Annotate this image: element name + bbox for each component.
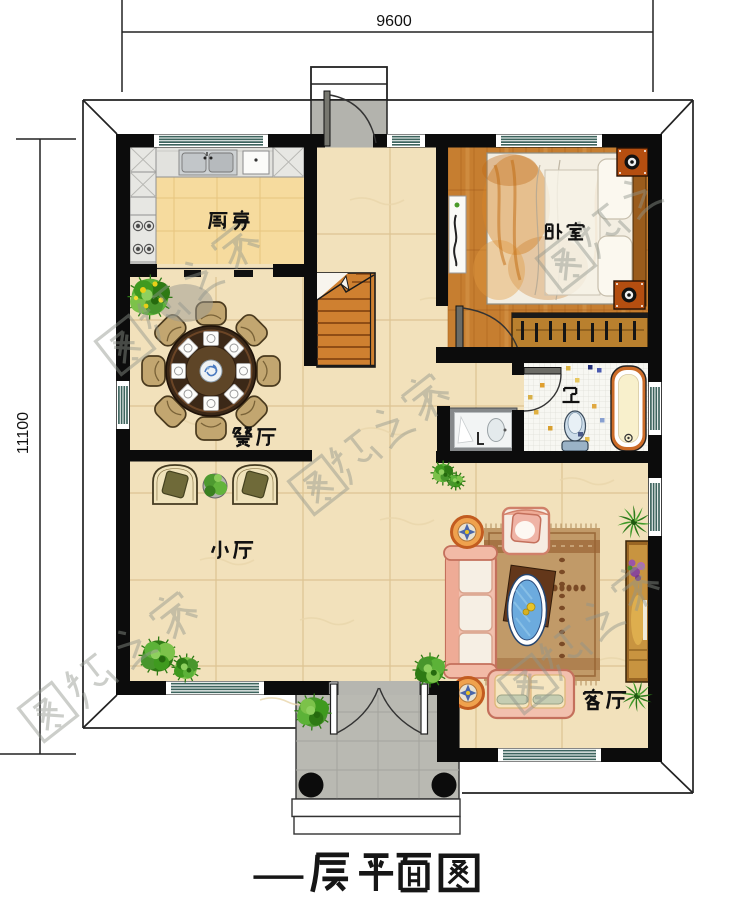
svg-text:9600: 9600: [376, 13, 412, 30]
svg-text:11100: 11100: [15, 412, 32, 454]
